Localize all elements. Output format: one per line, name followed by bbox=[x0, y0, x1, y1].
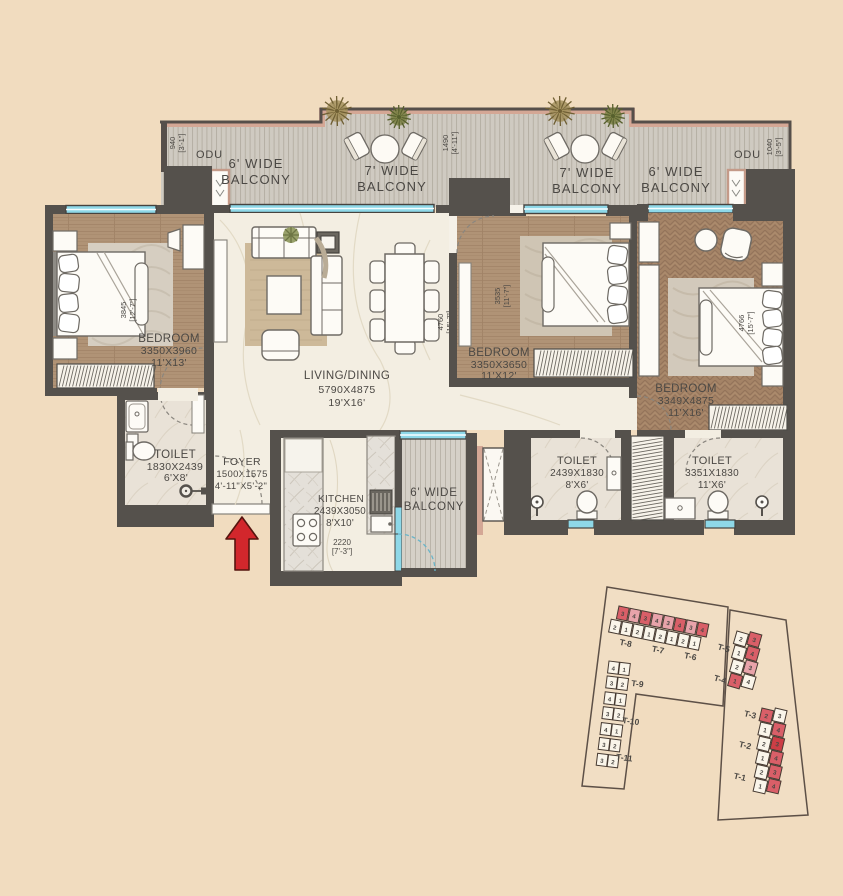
svg-text:TOILET: TOILET bbox=[692, 455, 732, 467]
svg-text:11'X16': 11'X16' bbox=[668, 407, 704, 419]
svg-text:BEDROOM: BEDROOM bbox=[655, 383, 717, 395]
svg-text:4760: 4760 bbox=[436, 314, 445, 331]
svg-text:6' WIDE: 6' WIDE bbox=[410, 487, 457, 499]
svg-text:11'X13': 11'X13' bbox=[151, 357, 187, 369]
svg-text:6'X8': 6'X8' bbox=[164, 472, 188, 484]
svg-text:KITCHEN: KITCHEN bbox=[318, 494, 364, 505]
svg-text:ODU: ODU bbox=[734, 149, 761, 161]
svg-text:BALCONY: BALCONY bbox=[552, 181, 622, 196]
svg-text:BALCONY: BALCONY bbox=[221, 172, 291, 187]
svg-text:3349X4875: 3349X4875 bbox=[658, 395, 714, 407]
svg-text:ODU: ODU bbox=[196, 149, 223, 161]
svg-text:T-11: T-11 bbox=[616, 752, 634, 764]
svg-text:[3'-1"]: [3'-1"] bbox=[177, 133, 186, 152]
svg-text:3350X3960: 3350X3960 bbox=[141, 345, 197, 357]
svg-text:BALCONY: BALCONY bbox=[404, 501, 465, 513]
svg-text:7' WIDE: 7' WIDE bbox=[365, 163, 420, 178]
svg-text:T-10: T-10 bbox=[622, 715, 640, 727]
svg-text:1040: 1040 bbox=[765, 139, 774, 156]
svg-text:3351X1830: 3351X1830 bbox=[685, 468, 739, 479]
svg-text:[4'-11"]: [4'-11"] bbox=[450, 132, 459, 155]
svg-text:1500X1575: 1500X1575 bbox=[216, 469, 267, 480]
svg-text:3535: 3535 bbox=[493, 288, 502, 305]
svg-text:1490: 1490 bbox=[441, 135, 450, 152]
svg-text:4766: 4766 bbox=[737, 315, 746, 332]
svg-text:[3'-5"]: [3'-5"] bbox=[774, 137, 783, 156]
svg-text:5790X4875: 5790X4875 bbox=[318, 384, 375, 396]
svg-text:3845: 3845 bbox=[119, 302, 128, 319]
svg-text:11'X12': 11'X12' bbox=[481, 370, 517, 382]
svg-text:TOILET: TOILET bbox=[557, 455, 597, 467]
svg-text:6' WIDE: 6' WIDE bbox=[229, 156, 284, 171]
svg-text:BALCONY: BALCONY bbox=[357, 179, 427, 194]
svg-text:T-9: T-9 bbox=[631, 678, 645, 689]
svg-text:7' WIDE: 7' WIDE bbox=[560, 165, 615, 180]
svg-text:2220: 2220 bbox=[333, 538, 351, 547]
svg-text:[12'-7"]: [12'-7"] bbox=[128, 298, 137, 321]
svg-text:940: 940 bbox=[168, 137, 177, 150]
svg-text:19'X16': 19'X16' bbox=[328, 397, 365, 409]
svg-text:BEDROOM: BEDROOM bbox=[138, 333, 200, 345]
svg-text:LIVING/DINING: LIVING/DINING bbox=[304, 370, 390, 382]
svg-text:2439X3050: 2439X3050 bbox=[314, 506, 366, 517]
svg-text:[7'-3"]: [7'-3"] bbox=[332, 547, 352, 556]
svg-text:[15'-7"]: [15'-7"] bbox=[746, 311, 755, 334]
svg-text:11'X6': 11'X6' bbox=[698, 480, 726, 491]
svg-text:BALCONY: BALCONY bbox=[641, 180, 711, 195]
svg-text:8'X6': 8'X6' bbox=[565, 480, 588, 491]
svg-text:6' WIDE: 6' WIDE bbox=[649, 164, 704, 179]
svg-text:8'X10': 8'X10' bbox=[326, 518, 354, 529]
svg-text:TOILET: TOILET bbox=[154, 449, 196, 461]
svg-text:2439X1830: 2439X1830 bbox=[550, 468, 604, 479]
svg-text:BEDROOM: BEDROOM bbox=[468, 347, 530, 359]
svg-text:[11'-7"]: [11'-7"] bbox=[502, 285, 511, 308]
svg-text:FOYER: FOYER bbox=[223, 456, 261, 468]
